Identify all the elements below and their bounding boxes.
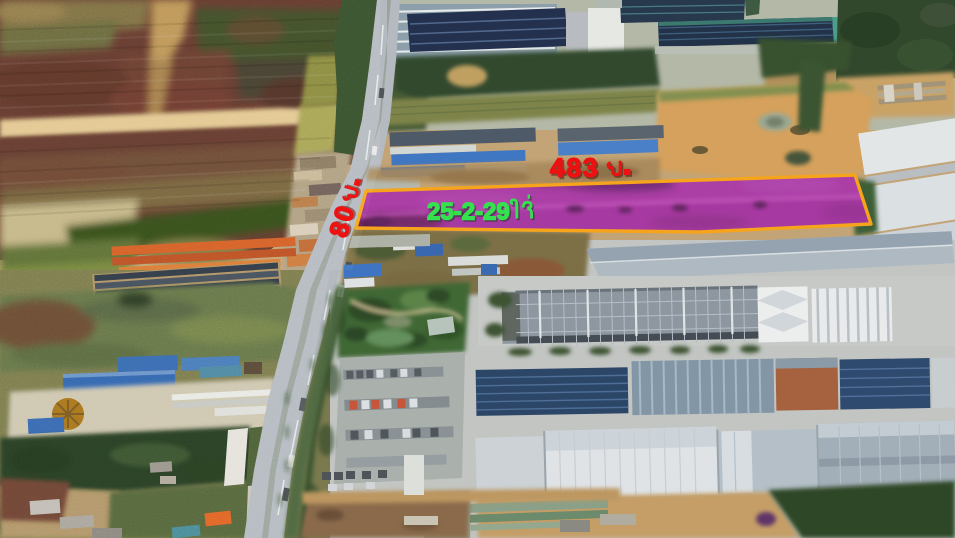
svg-text:25-2-29: 25-2-29 <box>427 199 510 226</box>
svg-text:483: 483 <box>550 153 599 183</box>
